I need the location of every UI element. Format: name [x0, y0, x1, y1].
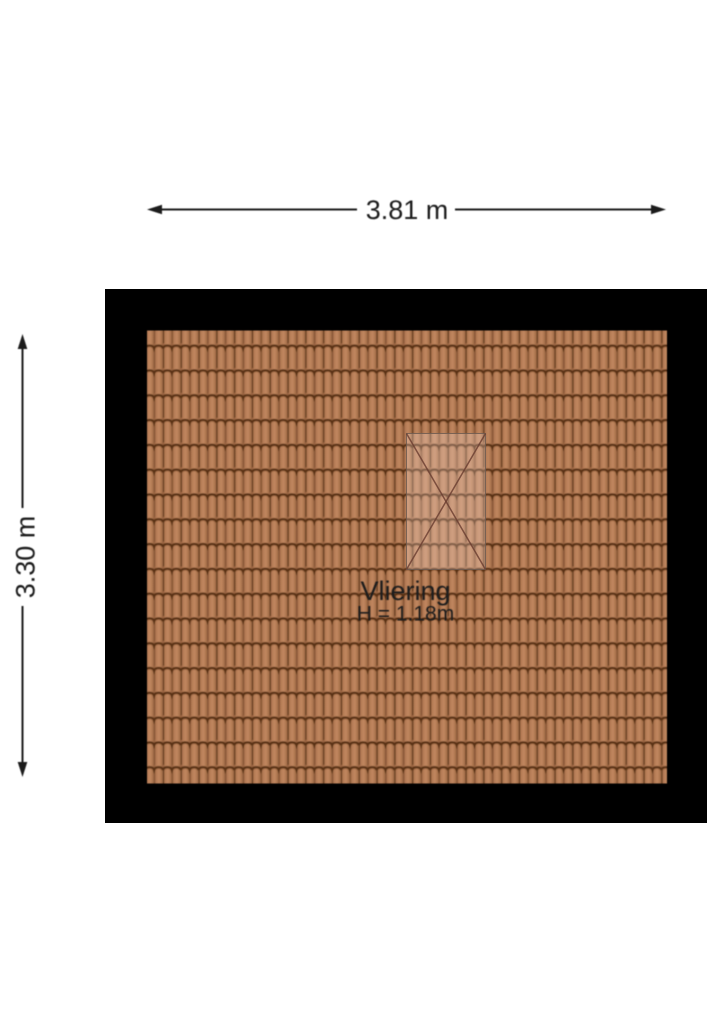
svg-text:3.81 m: 3.81 m: [366, 195, 449, 225]
svg-text:3.30 m: 3.30 m: [11, 516, 41, 599]
svg-text:Vliering: Vliering: [360, 576, 450, 606]
svg-text:H = 1.18m: H = 1.18m: [357, 603, 454, 626]
